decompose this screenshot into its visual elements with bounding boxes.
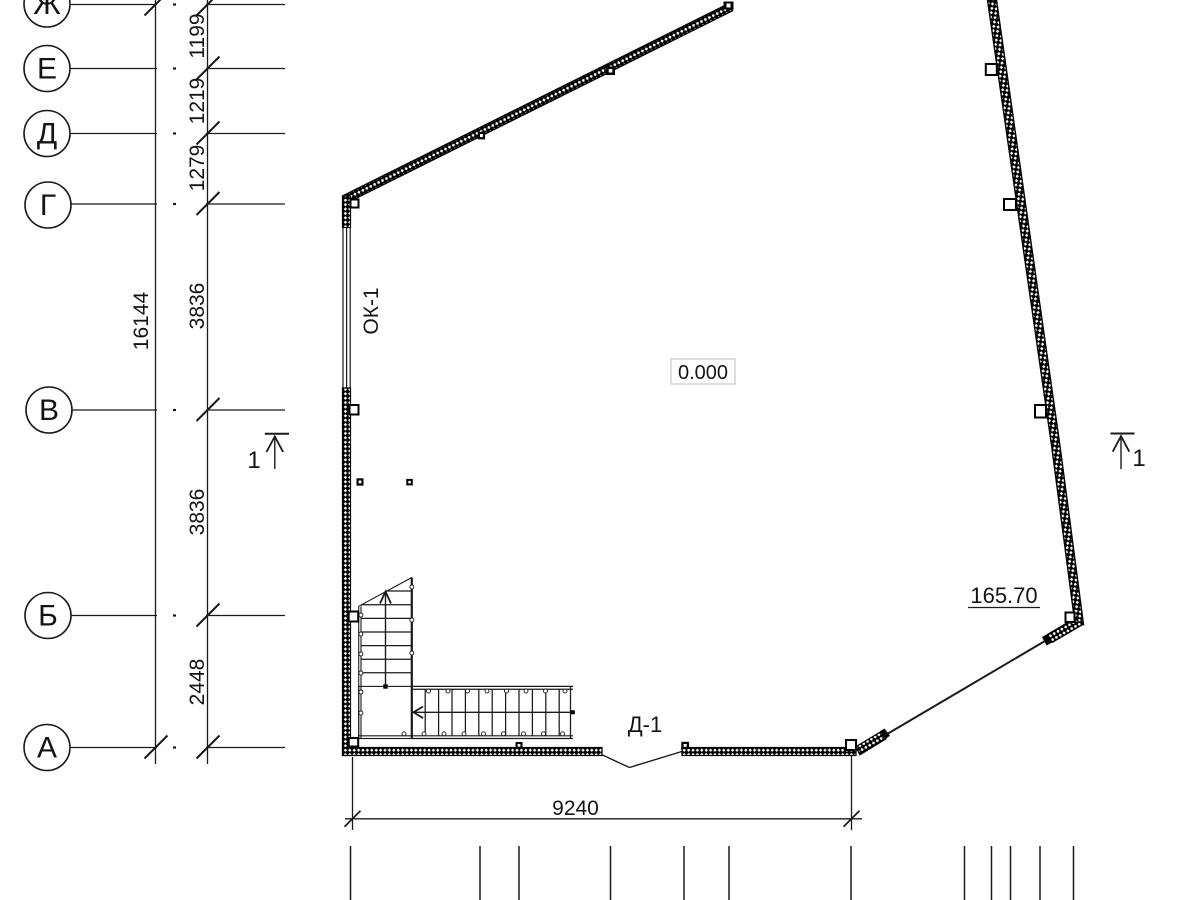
svg-text:9240: 9240 [552, 797, 599, 820]
svg-text:0.000: 0.000 [678, 362, 728, 384]
svg-text:2448: 2448 [186, 659, 209, 706]
svg-text:1: 1 [247, 447, 260, 474]
svg-text:1219: 1219 [186, 78, 209, 125]
svg-text:ОК-1: ОК-1 [360, 287, 383, 334]
svg-text:Ж: Ж [33, 0, 61, 21]
svg-text:Д: Д [37, 118, 57, 151]
svg-text:1: 1 [1132, 445, 1145, 472]
svg-text:Д-1: Д-1 [628, 712, 662, 737]
svg-text:16144: 16144 [130, 291, 153, 350]
svg-text:Б: Б [38, 600, 58, 633]
svg-text:А: А [37, 732, 57, 765]
svg-text:1279: 1279 [186, 145, 209, 192]
svg-text:1199: 1199 [186, 13, 209, 58]
svg-text:Е: Е [37, 53, 57, 86]
svg-text:Г: Г [40, 189, 56, 222]
svg-text:В: В [39, 394, 59, 427]
svg-text:3836: 3836 [186, 489, 209, 536]
svg-text:3836: 3836 [186, 283, 209, 330]
svg-text:165.70: 165.70 [970, 583, 1037, 608]
